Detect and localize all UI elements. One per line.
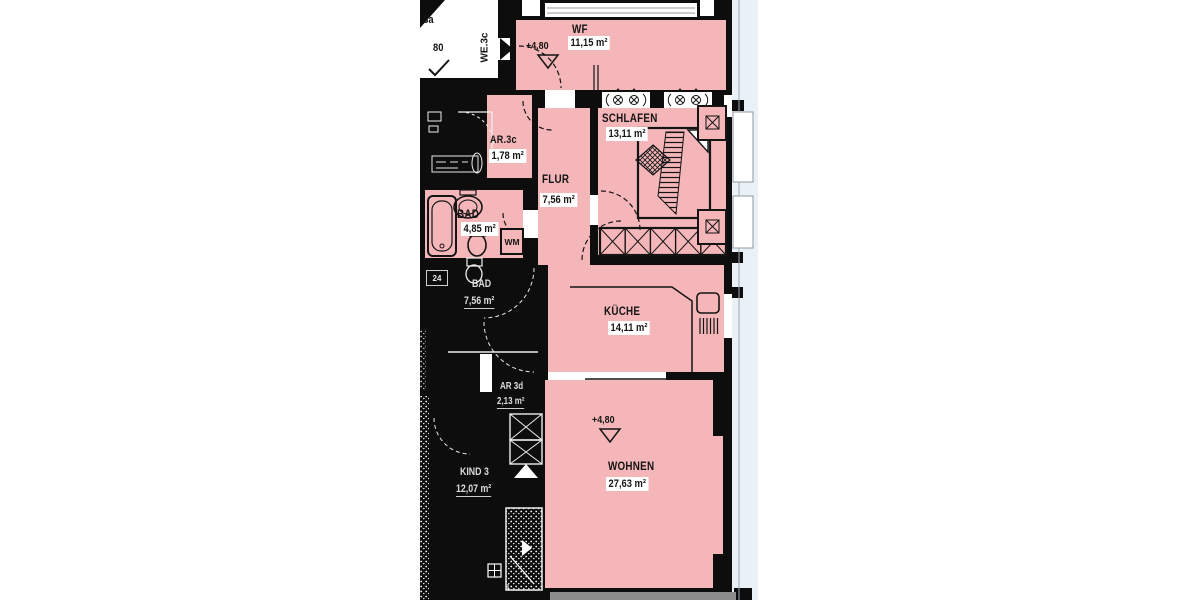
wall-notch-left [522,0,540,16]
balcony-wall-stub-4 [734,588,752,600]
level-marker-wf: +4,80 [526,40,549,52]
area-label-schlafen: 13,11 m² [606,127,648,141]
flur-schlafen-opening [590,195,598,225]
area-label-ar3c: 1,78 m² [489,149,526,163]
area-label-bad: 4,85 m² [461,222,498,236]
floor-plan: :3a 80 WE.3c +4,80 WF 11,15 m² SCHLAFEN … [420,0,758,600]
room-label-bad: BAD [457,207,479,221]
unit-label: WE.3c [480,27,491,69]
neighbor-room-label-bad: BAD [472,278,491,290]
balcony-wall-stub-1 [732,100,744,111]
neighbor-door-arc-1 [484,268,534,318]
balcony-door-opening-2 [724,294,732,338]
neighbor-door-arc-2 [484,322,534,372]
floor-plan-page: :3a 80 WE.3c +4,80 WF 11,15 m² SCHLAFEN … [0,0,1200,600]
room-kueche [548,265,724,372]
level-marker-wohnen: +4,80 [592,414,615,426]
wf-window [545,3,697,17]
neighbor-room-label-kind: KIND 3 [460,466,489,478]
stairwell-level-label: 80 [433,42,443,54]
entry-wall-lower [498,60,510,96]
balcony-strip [732,0,758,600]
room-label-kueche: KÜCHE [604,304,640,318]
room-label-ar3c: AR.3c [490,134,517,146]
neighbor-wardrobe-triangle [514,464,538,478]
neighbor-floor-drain-icon [488,564,501,577]
room-flur [538,108,590,265]
wf-flur-opening [545,90,575,108]
neighbor-area-label-ar: 2,13 m² [497,396,525,409]
area-label-wohnen: 27,63 m² [606,477,649,491]
neighbor-label-box [432,156,478,172]
area-label-wf: 11,15 m² [568,36,610,50]
window-symbol-box-2 [664,92,712,108]
neighbor-door-leaf [480,354,492,392]
room-label-wf: WF [572,22,588,36]
balcony-door-opening-1 [724,95,732,117]
wall-notch-right [700,0,714,16]
neighbor-small-label: 24 [426,270,448,286]
washing-machine-box: WM [500,228,524,255]
stair-hatch-strip-2 [420,330,426,390]
area-label-kueche: 14,11 m² [608,321,650,335]
area-label-flur: 7,56 m² [540,193,577,207]
neighbor-area-label-bad: 7,56 m² [464,295,494,309]
room-wf [516,20,726,90]
kueche-wohnen-opening [548,372,666,380]
stair-hatch-strip [420,396,429,600]
balcony-wall-stub-3 [732,287,743,298]
balcony-wall-stub-2 [732,252,743,263]
neighbor-wardrobe-icon [510,414,542,464]
neighbor-door-arc-3 [434,418,470,454]
neighbor-shower-icon [428,112,494,173]
flur-bad-opening [523,210,538,238]
neighbor-area-label-kind: 12,07 m² [456,483,491,497]
entry-door-gap [498,38,510,60]
lower-balcony-strip [550,592,736,600]
neighbor-room-label-ar: AR 3d [500,381,523,392]
room-wohnen-bay [713,436,723,554]
room-label-flur: FLUR [542,172,569,186]
window-symbol-box-1 [602,92,650,108]
room-label-wohnen: WOHNEN [608,459,654,473]
stairwell-unit-label: :3a [420,14,434,26]
room-label-schlafen: SCHLAFEN [602,111,658,125]
entry-wall-upper [498,0,510,38]
neighbor-bed-icon [506,508,542,590]
